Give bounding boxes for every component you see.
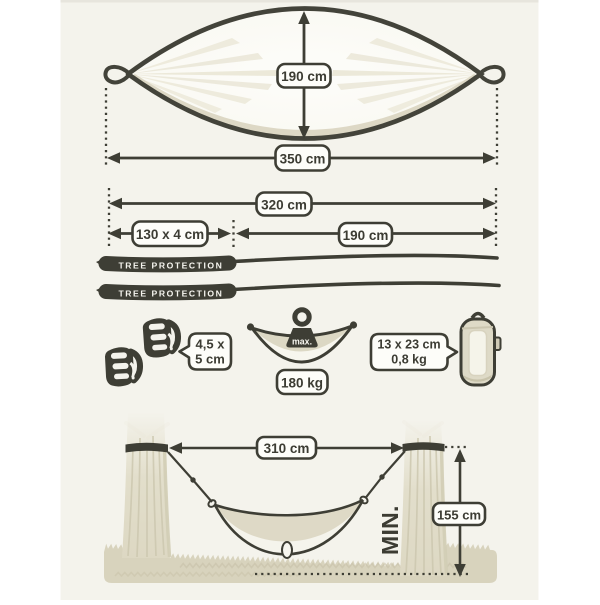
svg-text:TREE PROTECTION: TREE PROTECTION — [119, 289, 224, 299]
svg-text:155 cm: 155 cm — [437, 508, 481, 523]
svg-text:350 cm: 350 cm — [280, 152, 326, 167]
svg-text:max.: max. — [292, 337, 312, 347]
svg-text:130 x 4 cm: 130 x 4 cm — [136, 227, 204, 242]
svg-text:MIN.: MIN. — [377, 505, 403, 555]
svg-text:190 cm: 190 cm — [281, 69, 327, 84]
svg-text:320 cm: 320 cm — [261, 198, 307, 213]
svg-text:4,5 x: 4,5 x — [196, 337, 226, 352]
svg-text:310 cm: 310 cm — [264, 441, 310, 456]
svg-text:13 x 23 cm: 13 x 23 cm — [377, 338, 440, 352]
svg-text:0,8 kg: 0,8 kg — [391, 353, 426, 367]
svg-text:180 kg: 180 kg — [281, 376, 323, 391]
svg-text:5 cm: 5 cm — [195, 352, 225, 367]
svg-text:TREE PROTECTION: TREE PROTECTION — [119, 261, 224, 271]
svg-text:190 cm: 190 cm — [343, 228, 389, 243]
